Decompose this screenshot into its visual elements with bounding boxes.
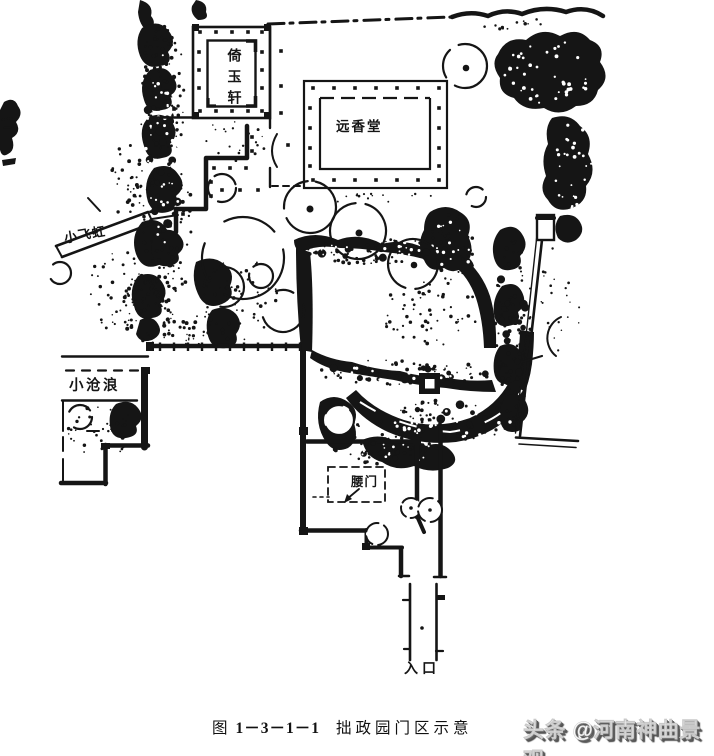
watermark: 头条 @河南神曲景观 xyxy=(523,714,714,756)
label-xiaocanglang: 小沧浪 xyxy=(69,377,120,395)
garden-plan-drawing xyxy=(0,0,714,712)
rockery-middle-band xyxy=(310,350,496,392)
shrubs xyxy=(366,498,442,630)
caption-prefix: 图 xyxy=(212,720,228,737)
label-yuanxiangtang: 远香堂 xyxy=(336,119,383,136)
label-yaomen: 腰门 xyxy=(351,475,378,491)
north-wall xyxy=(268,17,452,24)
figure-caption: 图1－3－1－1拙政园门区示意 xyxy=(212,716,473,738)
label-yiyuxuan: 倚玉轩 xyxy=(224,48,242,114)
entrance-path xyxy=(410,584,437,660)
scanned-figure-page: 倚玉轩 远香堂 小飞虹 小沧浪 腰门 入口 图1－3－1－1拙政园门区示意 头条… xyxy=(0,0,714,756)
rock-top-right xyxy=(494,32,605,113)
covered-walkway xyxy=(176,126,247,232)
caption-number: 1－3－1－1 xyxy=(236,720,321,737)
label-rukou: 入口 xyxy=(404,661,440,679)
caption-title: 拙政园门区示意 xyxy=(336,720,473,737)
